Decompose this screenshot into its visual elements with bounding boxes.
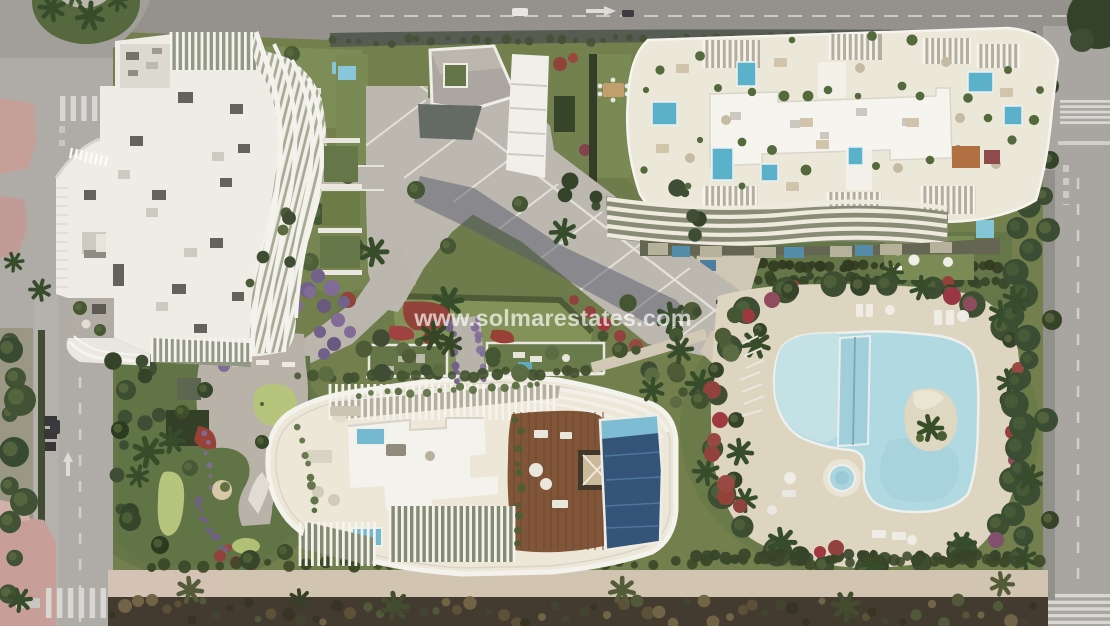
svg-text:www.solmarestates.com: www.solmarestates.com <box>413 305 692 331</box>
